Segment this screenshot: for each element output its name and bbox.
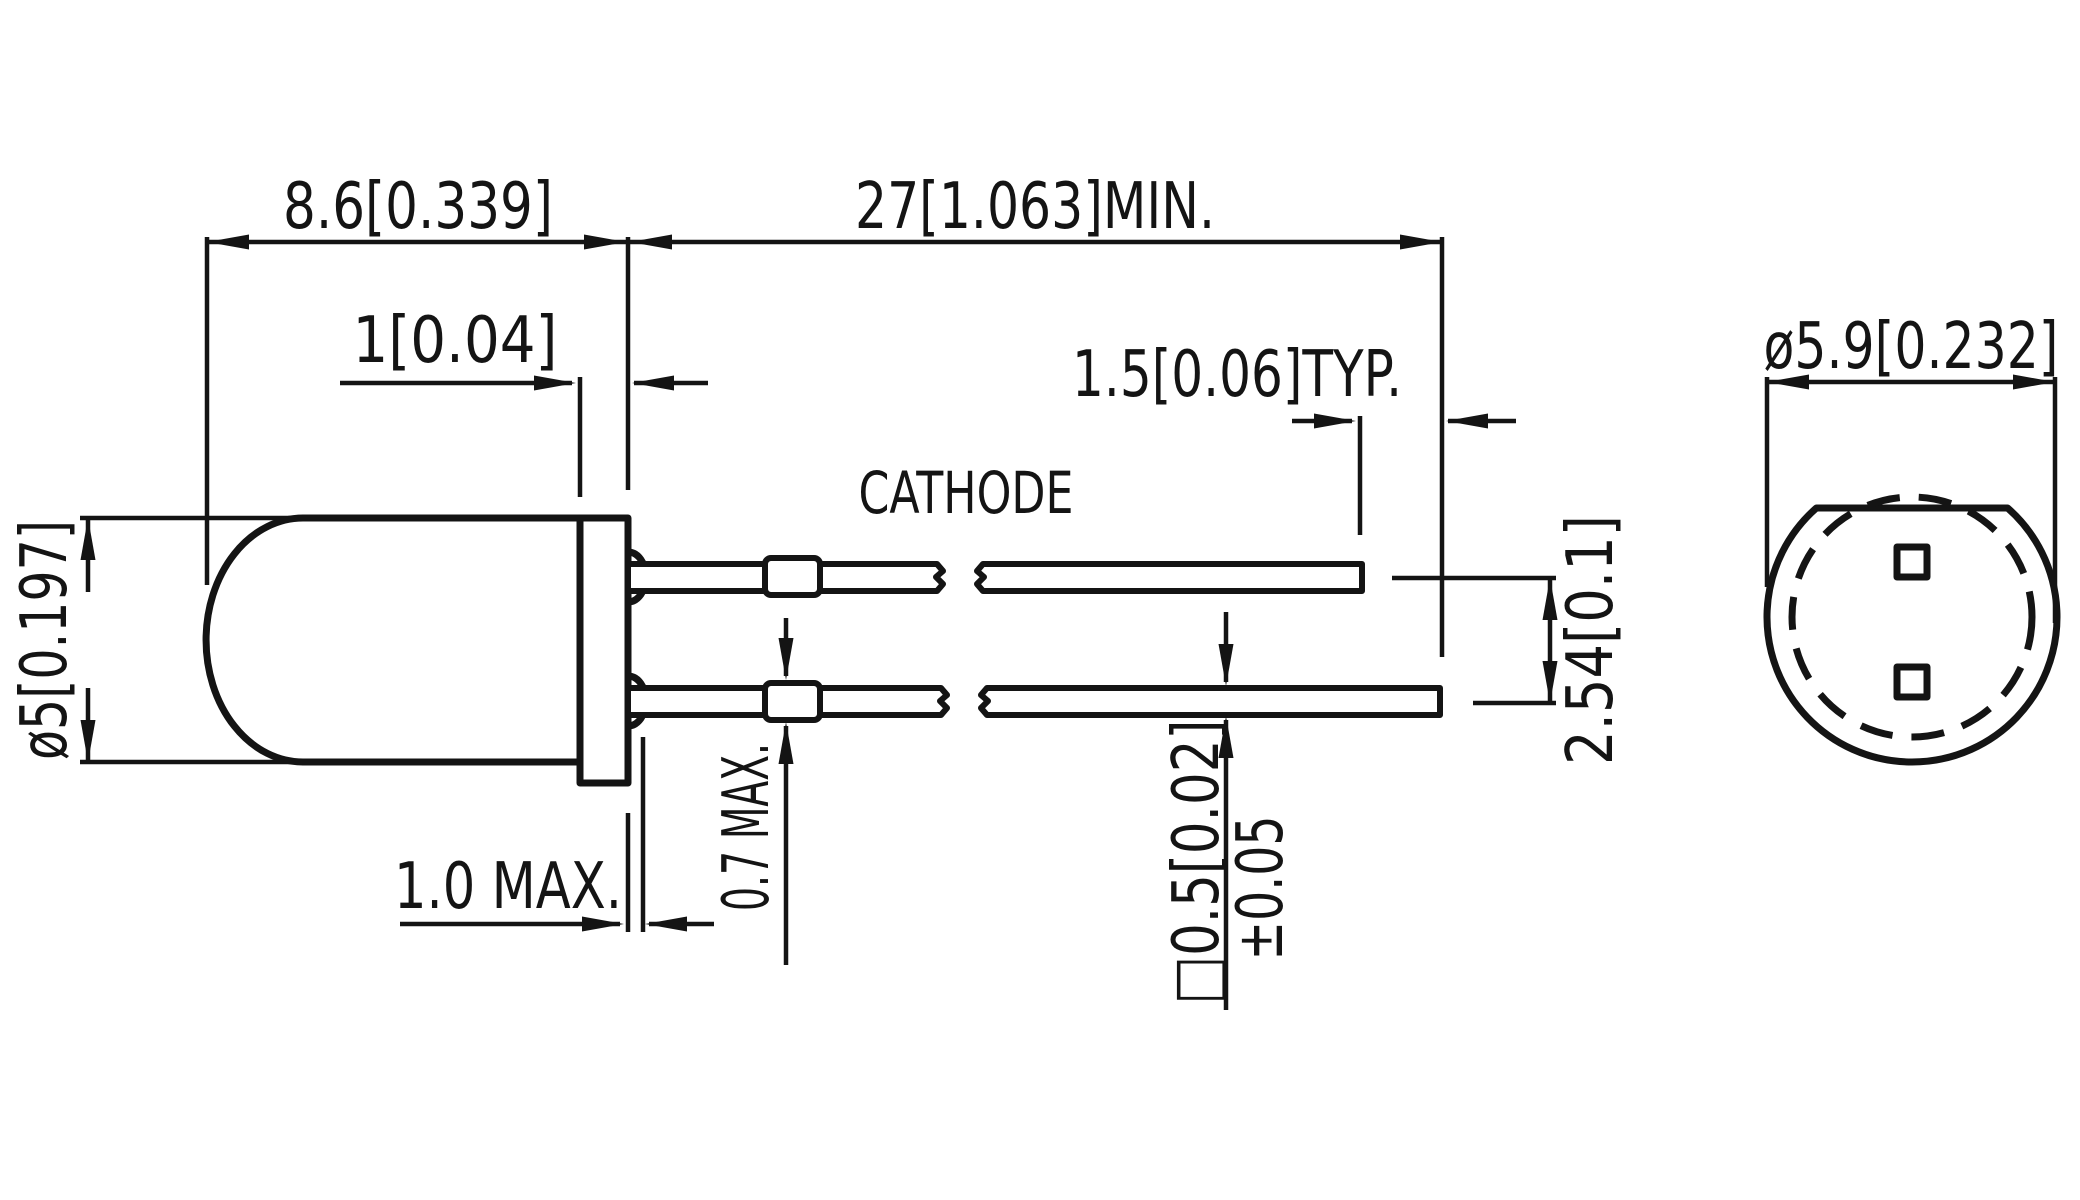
dim-lead-tip-offset: 1.5[0.06]TYP. — [1072, 338, 1516, 535]
led-dimension-drawing: 8.6[0.339] 27[1.063]MIN. 1[0.04] ø5[0.19… — [0, 0, 2080, 1200]
dim-lead-pitch-text: 2.54[0.1] — [1554, 515, 1628, 765]
dim-lead-square-tolerance-text: ±0.05 — [1224, 816, 1298, 961]
dim-body-length-text: 8.6[0.339] — [283, 170, 553, 244]
led-flange-shape — [580, 518, 628, 783]
dim-lead-square-text: □0.5[0.02] — [1160, 720, 1234, 1005]
anode-lead-right-segment — [981, 688, 1440, 715]
arrow-left-icon — [630, 235, 672, 250]
dim-lead-standoff-text: 0.7 MAX. — [710, 743, 784, 911]
dim-lead-tip-offset-text: 1.5[0.06]TYP. — [1072, 338, 1402, 412]
cathode-label: CATHODE — [859, 459, 1074, 527]
top-view — [1767, 497, 2057, 762]
arrow-right-icon — [1400, 235, 1442, 250]
arrow-down-icon — [1219, 644, 1234, 686]
cathode-lead-right-segment — [977, 564, 1362, 591]
arrow-left-icon — [207, 235, 249, 250]
dim-lead-standoff: 0.7 MAX. — [710, 618, 794, 965]
cathode-lead-standoff-bump — [765, 558, 820, 595]
anode-lead-section-square — [1897, 667, 1927, 697]
arrow-down-icon — [81, 720, 96, 762]
arrow-left-icon — [1446, 414, 1488, 429]
arrow-left-icon — [632, 376, 674, 391]
arrow-up-icon — [81, 518, 96, 560]
dim-lead-length-text: 27[1.063]MIN. — [855, 170, 1215, 244]
arrow-left-icon — [645, 917, 687, 932]
dim-flange-thickness-text: 1[0.04] — [353, 304, 558, 378]
dim-flange-lip-text: 1.0 MAX. — [394, 850, 622, 924]
led-body-shape — [206, 518, 580, 762]
dim-lead-square-section: □0.5[0.02] ±0.05 — [1160, 612, 1298, 1010]
dim-flange-lip: 1.0 MAX. — [394, 737, 714, 932]
arrow-right-icon — [584, 235, 626, 250]
side-view — [206, 518, 1440, 783]
cathode-lead-section-square — [1897, 547, 1927, 577]
dim-lead-pitch: 2.54[0.1] — [1392, 515, 1628, 765]
arrow-right-icon — [1314, 414, 1356, 429]
dim-flange-thickness: 1[0.04] — [340, 304, 708, 497]
dim-flange-diameter-text: ø5.9[0.232] — [1764, 310, 2059, 384]
anode-lead-standoff-bump — [765, 683, 820, 720]
dim-body-diameter-text: ø5[0.197] — [8, 520, 82, 760]
led-dimension-drawing-sheet: 8.6[0.339] 27[1.063]MIN. 1[0.04] ø5[0.19… — [0, 0, 2080, 1200]
arrow-down-icon — [779, 638, 794, 680]
